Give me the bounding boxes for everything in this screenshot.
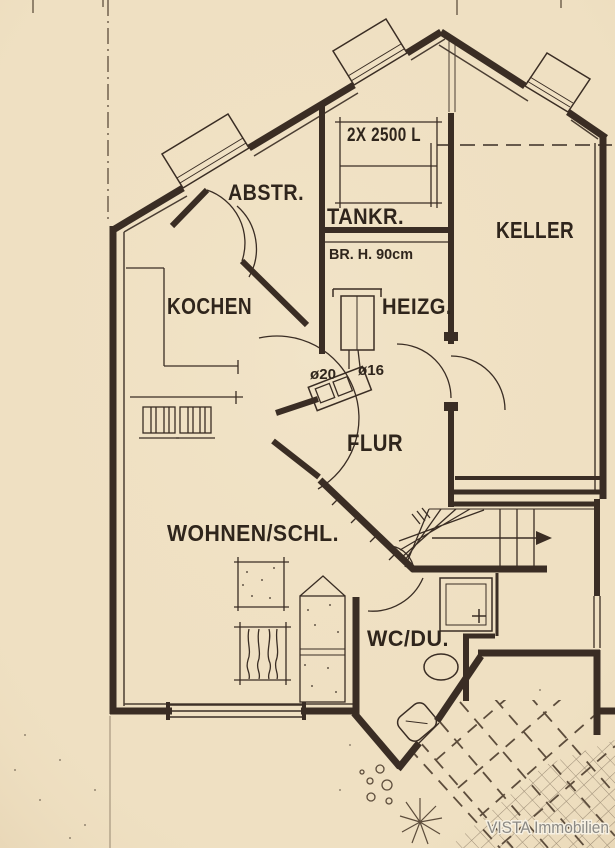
room-label-wohnen-schlafen: WOHNEN/SCHL. (167, 520, 339, 546)
room-label-flur: FLUR (347, 430, 403, 457)
watermark: VISTA Immobilien (487, 818, 609, 837)
pipe-diameter-16-label: ø16 (358, 362, 384, 379)
window-bottom (168, 702, 304, 720)
floor-plan-canvas: ABSTR. 2X 2500 L TANKR. BR. H. 90cm KELL… (0, 0, 615, 848)
room-label-kochen: KOCHEN (167, 293, 252, 319)
paper-vignette (0, 0, 615, 848)
room-label-heizung: HEIZG. (382, 294, 452, 319)
parapet-height-label: BR. H. 90cm (329, 246, 413, 263)
room-label-wc-dusche: WC/DU. (367, 626, 449, 651)
floor-plan-page: ABSTR. 2X 2500 L TANKR. BR. H. 90cm KELL… (0, 0, 615, 848)
room-label-tankraum: TANKR. (327, 204, 404, 229)
room-label-abstellraum: ABSTR. (228, 180, 304, 205)
pipe-diameter-20-label: ø20 (310, 366, 336, 383)
room-label-keller: KELLER (496, 217, 574, 243)
tank-capacity-label: 2X 2500 L (347, 125, 421, 146)
